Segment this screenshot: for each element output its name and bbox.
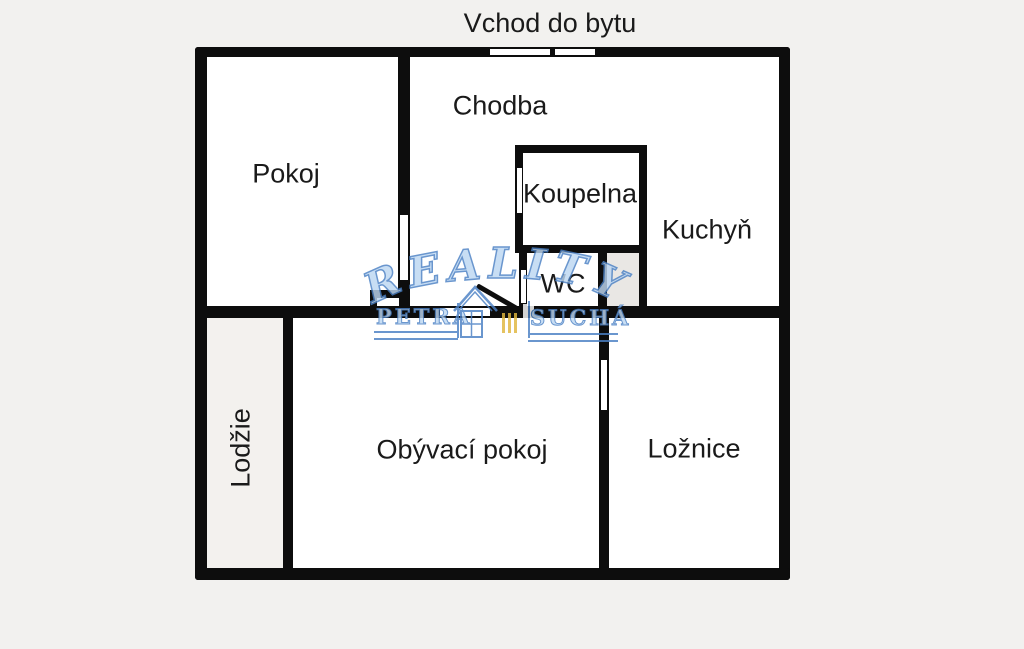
wall-lodzie-obyvaci (283, 306, 293, 580)
label-koupelna: Koupelna (523, 181, 637, 208)
door-opening-entrance-right (555, 49, 595, 55)
label-kuchyn: Kuchyň (662, 217, 752, 244)
door-opening-pokoj (400, 215, 408, 280)
label-pokoj: Pokoj (252, 161, 320, 188)
label-obyvaci-pokoj: Obývací pokoj (376, 437, 547, 464)
door-opening-entrance-left (490, 49, 550, 55)
label-chodba: Chodba (453, 93, 548, 120)
shaft-area (607, 253, 639, 306)
wall-wc-right (598, 253, 607, 313)
door-opening-wc (521, 270, 526, 303)
floor-plan: Vchod do bytu Pokoj Chodba Koupelna Kuch… (0, 0, 1024, 649)
entrance-title: Vchod do bytu (464, 10, 637, 37)
pillar-inner-void (377, 298, 399, 306)
wall-koupelna-kuchyn (639, 145, 647, 318)
label-loznice: Ložnice (647, 436, 740, 463)
wall-obyvaci-loznice (599, 306, 609, 580)
door-opening-obyvaci-pokoj (440, 308, 490, 316)
wall-koupelna-top (515, 145, 647, 153)
door-opening-loznice (601, 360, 607, 410)
label-lodzie: Lodžie (228, 408, 255, 488)
label-wc: WC (541, 271, 586, 298)
door-opening-koupelna (517, 168, 522, 213)
wall-koupelna-bottom (515, 245, 647, 253)
